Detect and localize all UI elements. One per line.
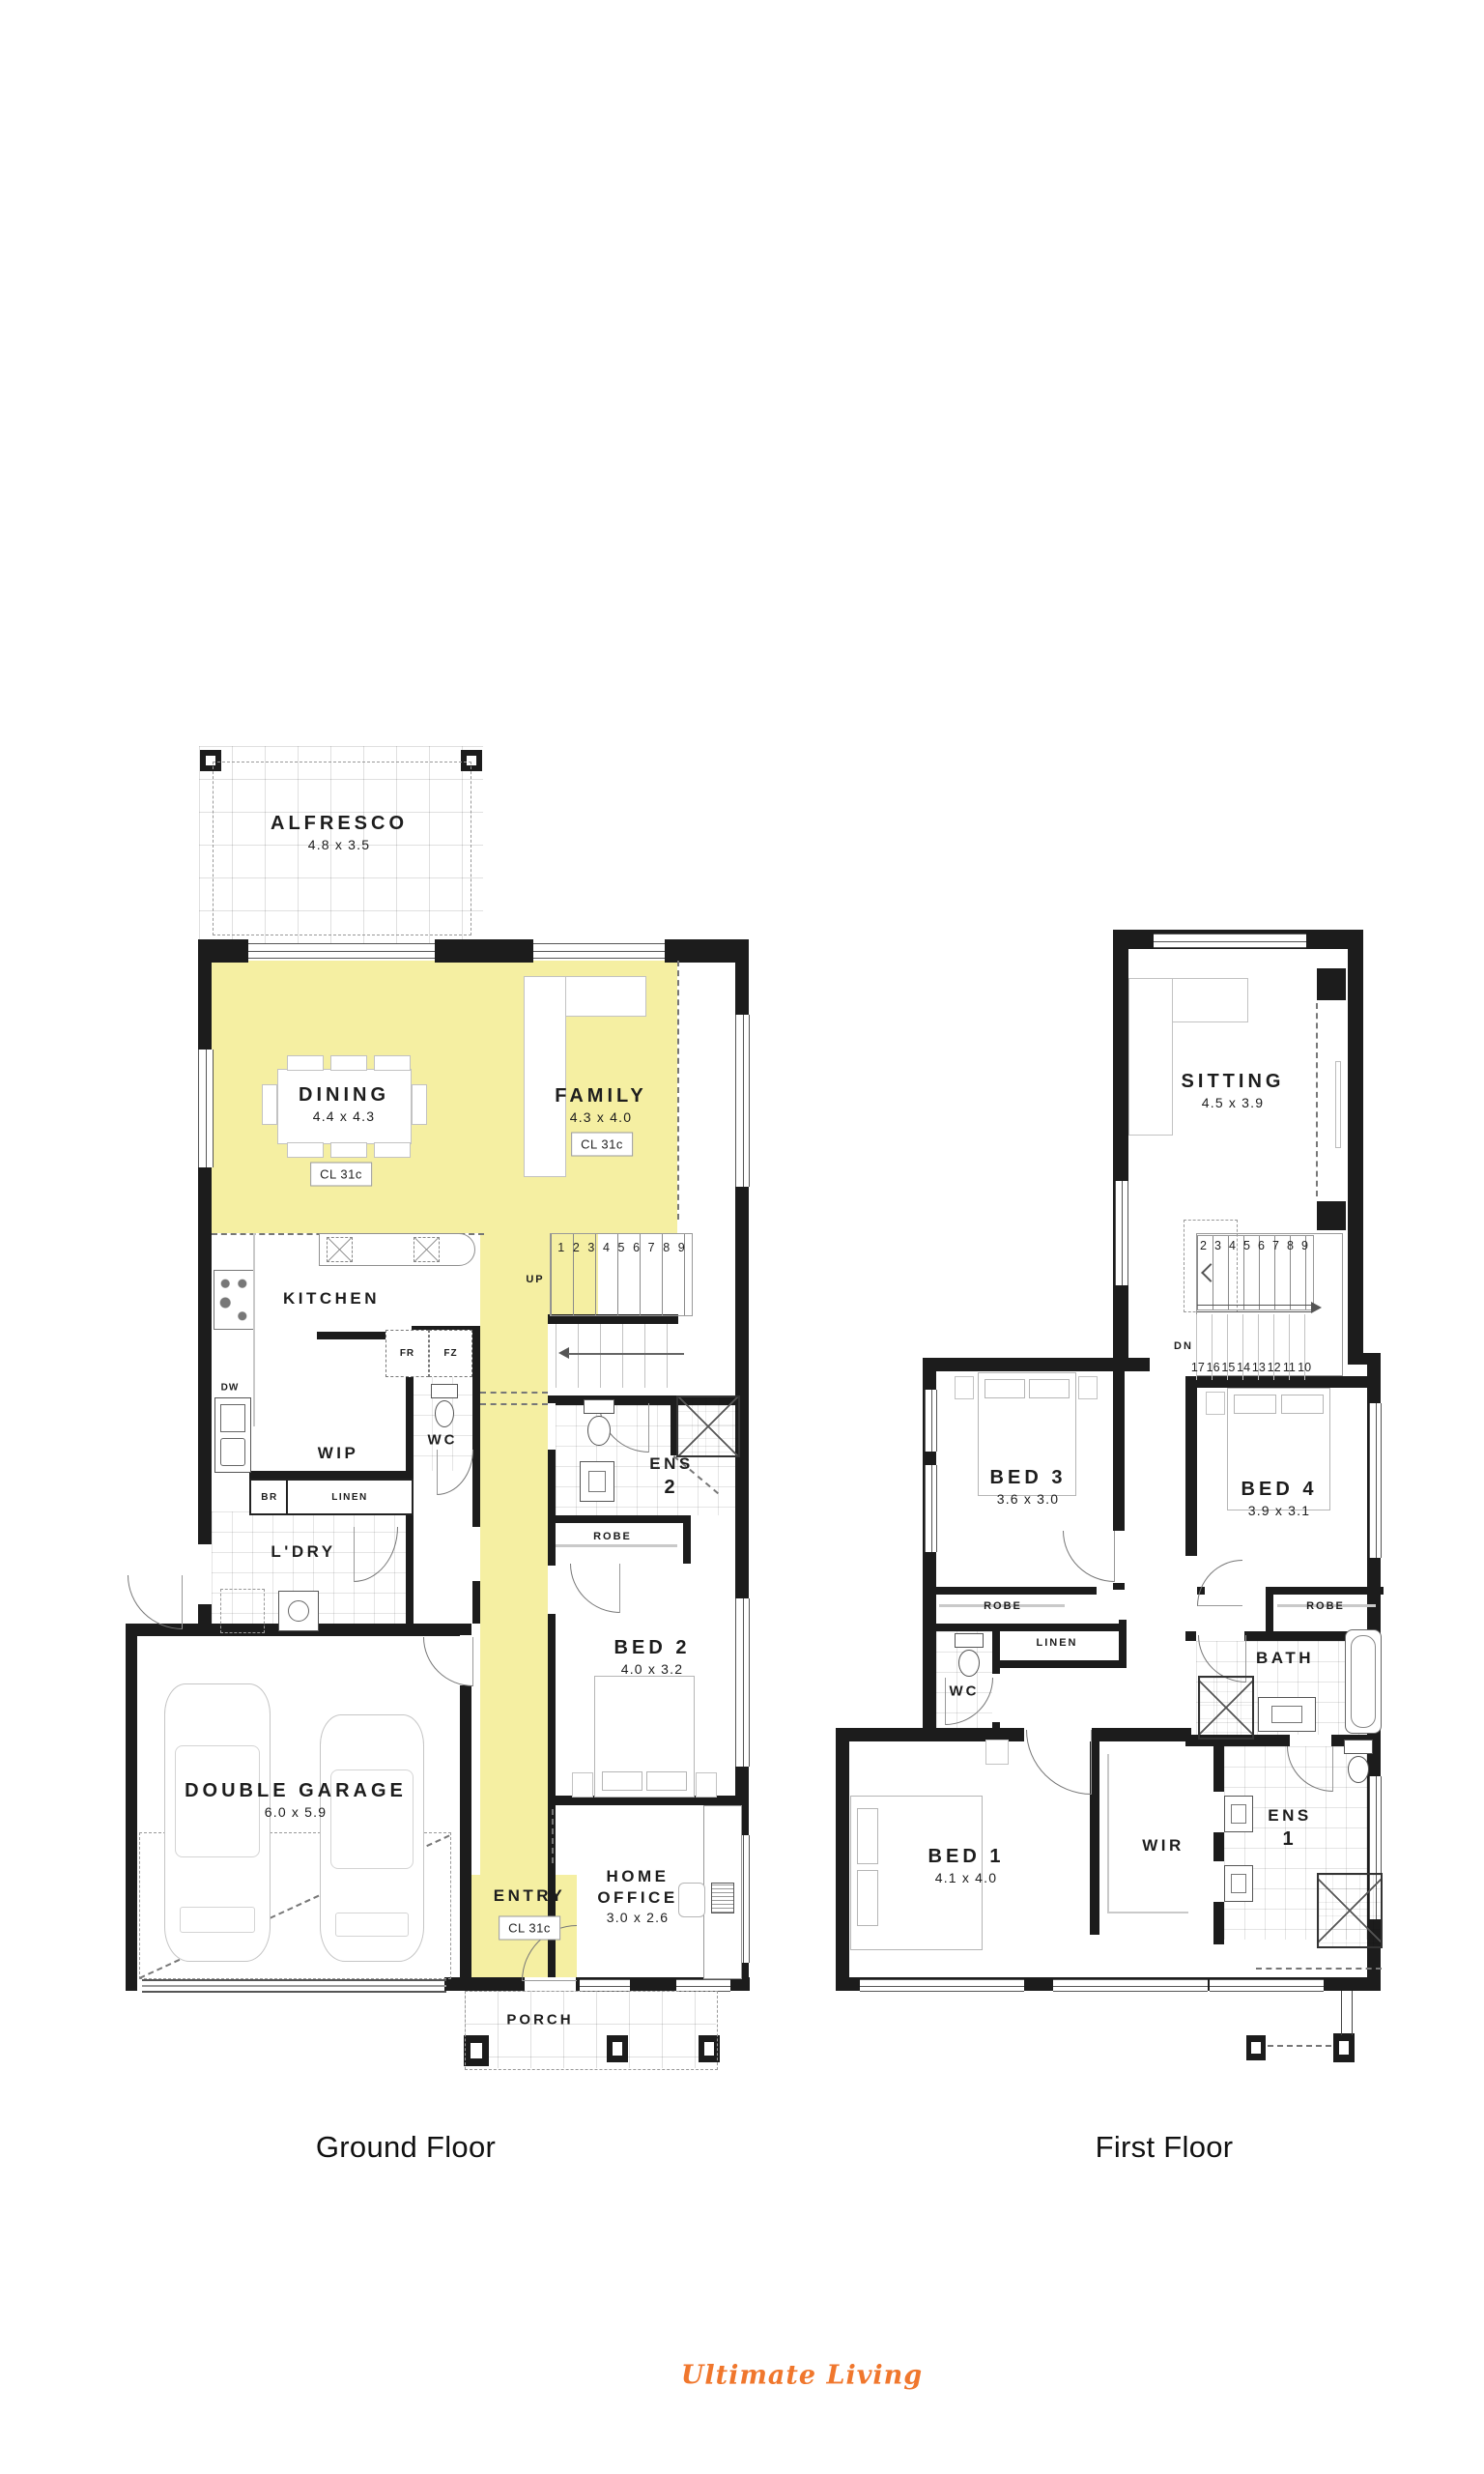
robe-label-bed3: ROBE [984, 1599, 1022, 1613]
ground-floor-caption: Ground Floor [316, 2130, 496, 2165]
room-label-wc-ground: WC [428, 1430, 458, 1450]
robe-label-bed2: ROBE [593, 1530, 632, 1543]
builder-logo: Ultimate Living [681, 2361, 923, 2391]
broom-cupboard: BR [249, 1479, 290, 1515]
robe-label-bed4: ROBE [1306, 1599, 1345, 1613]
ceiling-label-entry: CL 31c [499, 1916, 560, 1941]
labels: ALFRESCO4.8 x 3.5 DINING4.4 x 4.3 CL 31c… [0, 0, 1484, 2474]
floor-plan-canvas: ALFRESCO4.8 x 3.5 DINING4.4 x 4.3 CL 31c… [0, 0, 1484, 2474]
stair-numbers-first-upper: 23456789 [1196, 1239, 1312, 1258]
ceiling-label-dining: CL 31c [310, 1163, 372, 1187]
stair-numbers-first-lower: 1716151413121110 [1190, 1361, 1312, 1380]
first-floor-caption: First Floor [1096, 2130, 1234, 2165]
stairs-down-label: DN [1174, 1339, 1193, 1353]
room-label-wc-first: WC [950, 1682, 980, 1701]
dishwasher-label: DW [221, 1382, 240, 1395]
room-label-wir: WIR [1142, 1835, 1184, 1856]
room-label-laundry: L'DRY [271, 1541, 335, 1563]
room-label-home-office: HOME OFFICE3.0 x 2.6 [565, 1866, 710, 1926]
stairs-up-label: UP [526, 1273, 544, 1286]
room-label-bed1: BED 14.1 x 4.0 [928, 1844, 1005, 1886]
room-label-dining: DINING4.4 x 4.3 [299, 1082, 389, 1125]
linen-cupboard-ground: LINEN [286, 1479, 414, 1515]
room-label-entry: ENTRY [494, 1885, 566, 1907]
room-label-garage: DOUBLE GARAGE6.0 x 5.9 [185, 1778, 407, 1821]
ceiling-label-family: CL 31c [571, 1133, 633, 1157]
room-label-bed2: BED 24.0 x 3.2 [614, 1635, 691, 1678]
room-label-ens1: ENS1 [1268, 1805, 1311, 1852]
room-label-wip: WIP [318, 1443, 359, 1464]
room-label-sitting: SITTING4.5 x 3.9 [1182, 1069, 1285, 1111]
room-label-family: FAMILY4.3 x 4.0 [555, 1083, 647, 1126]
room-label-bath: BATH [1256, 1648, 1314, 1669]
linen-label-first: LINEN [1037, 1636, 1078, 1650]
room-label-porch: PORCH [506, 2010, 573, 2029]
room-label-bed4: BED 43.9 x 3.1 [1241, 1477, 1318, 1519]
room-label-bed3: BED 33.6 x 3.0 [990, 1465, 1067, 1508]
freezer-space: FZ [429, 1330, 472, 1377]
room-label-kitchen: KITCHEN [283, 1288, 380, 1309]
room-label-ens2: ENS2 [649, 1453, 693, 1500]
fridge-space: FR [385, 1330, 429, 1377]
room-label-alfresco: ALFRESCO4.8 x 3.5 [271, 811, 408, 853]
stair-numbers-ground: 123456789 [554, 1241, 689, 1260]
